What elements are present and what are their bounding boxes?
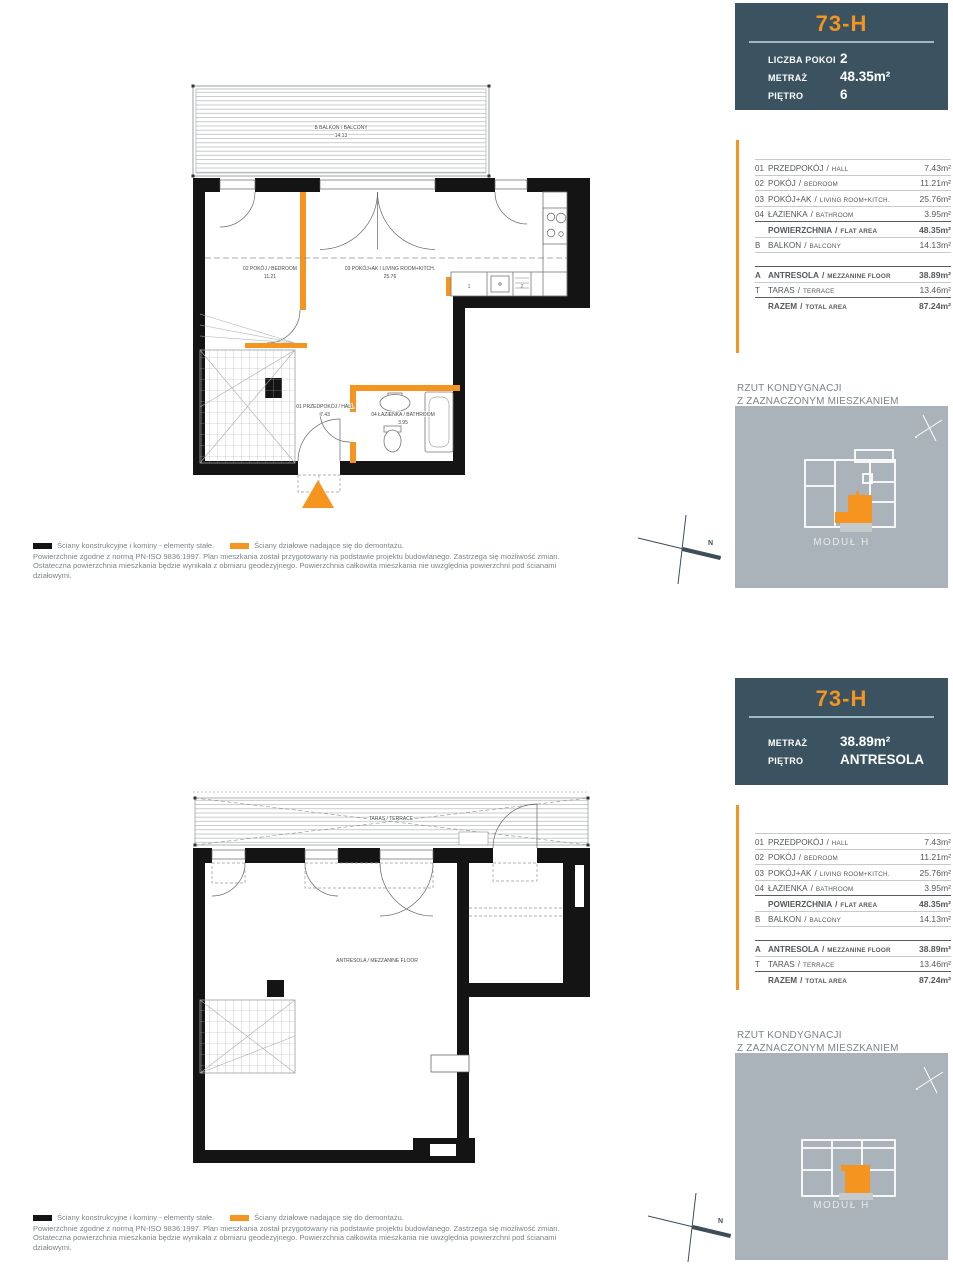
header-label: LICZBA POKOI — [768, 55, 840, 65]
north-compass-icon — [915, 415, 942, 441]
header-label: PIĘTRO — [768, 91, 840, 101]
room-label: TARAS / TERRACE — [369, 816, 414, 822]
table-row: 04ŁAZIENKA/BATHROOM3.95m² — [755, 880, 951, 896]
minimap-drawing — [735, 406, 948, 588]
table-row: 02POKÓJ/BEDROOM11.21m² — [755, 849, 951, 865]
dashed-guides — [212, 863, 563, 916]
legend: Ściany konstrukcyjne i kominy - elementy… — [33, 541, 593, 580]
legend: Ściany konstrukcyjne i kominy - elementy… — [33, 1213, 593, 1252]
table-row: 03POKÓJ+AK/LIVING ROOM+KITCH.25.76m² — [755, 864, 951, 880]
minimap-drawing — [735, 1053, 948, 1260]
legend-structural-text: Ściany konstrukcyjne i kominy - elementy… — [57, 1213, 214, 1223]
table-row: 01PRZEDPOKÓJ/HALL7.43m² — [755, 833, 951, 849]
module-label: MODUŁ H — [735, 537, 948, 548]
toilet-icon — [384, 426, 401, 452]
building-minimap-top: MODUŁ H — [735, 406, 948, 588]
stairs — [200, 1000, 295, 1073]
table-row-total: RAZEM/TOTAL AREA87.24m² — [755, 971, 951, 987]
wall-opening — [431, 1055, 469, 1072]
room-area: 11.21 — [264, 274, 276, 280]
table-row: TTARAS/TERRACE13.46m² — [755, 282, 951, 298]
partition-wall-swatch — [230, 1215, 249, 1222]
header-value: 2 — [840, 51, 848, 66]
room-label: 04 ŁAZIENKA / BATHROOM — [371, 412, 435, 418]
unit-header-panel-top: 73-H LICZBA POKOI 2 METRAŻ 48.35m² PIĘTR… — [735, 3, 948, 110]
room-label: 03 POKÓJ+AK / LIVING ROOM+KITCH. — [345, 265, 435, 272]
header-divider — [749, 41, 934, 43]
table-row: BBALKON/BALCONY14.13m² — [755, 237, 951, 254]
accent-line — [736, 805, 739, 990]
highlighted-unit — [835, 495, 872, 523]
kitchen — [451, 192, 567, 296]
header-row: METRAŻ 48.35m² — [735, 69, 948, 84]
partition-wall-swatch — [230, 543, 249, 550]
stairs — [200, 314, 295, 463]
row-name-en: HALL — [832, 166, 849, 173]
room-label: 02 POKÓJ / BEDROOM — [243, 265, 297, 272]
room-area: 25.76 — [384, 274, 397, 280]
bathroom-fixtures — [380, 392, 453, 452]
bathtub-icon — [425, 392, 453, 452]
header-row: PIĘTRO ANTRESOLA — [735, 752, 948, 767]
table-row-total: RAZEM/TOTAL AREA87.24m² — [755, 297, 951, 313]
room-area: 7.43 — [320, 412, 330, 418]
header-value: 48.35m² — [840, 69, 890, 84]
structural-wall-swatch — [33, 543, 52, 550]
row-code: 01 — [755, 164, 768, 173]
entrance-marker — [302, 480, 334, 508]
room-area: 14.13 — [335, 133, 348, 139]
svg-text:N: N — [708, 540, 713, 547]
accent-line — [736, 140, 739, 353]
kitchen-item-number: 1 — [467, 284, 470, 290]
building-minimap-bottom: MODUŁ H — [735, 1053, 948, 1260]
header-row: METRAŻ 38.89m² — [735, 734, 948, 749]
legend-note: Powierzchnie zgodne z normą PN-ISO 9836:… — [33, 1224, 593, 1234]
module-label: MODUŁ H — [735, 1200, 948, 1211]
room-label: 01 PRZEDPOKÓJ / HALL — [296, 403, 354, 410]
north-compass-icon: N — [638, 1190, 738, 1265]
legend-partition-text: Ściany działowe nadające się do demontaż… — [254, 541, 404, 551]
floor-note: RZUT KONDYGNACJI Z ZAZNACZONYM MIESZKANI… — [737, 1029, 899, 1055]
legend-note: Powierzchnie zgodne z normą PN-ISO 9836:… — [33, 552, 593, 562]
header-divider — [749, 716, 934, 718]
floor-note: RZUT KONDYGNACJI Z ZAZNACZONYM MIESZKANI… — [737, 382, 899, 408]
legend-note: Ostateczna powierzchnia mieszkania będzi… — [33, 1233, 593, 1252]
header-value: 6 — [840, 87, 848, 102]
floor-plan-main: B BALKON / BALCONY 14.13 02 POKÓJ / BEDR… — [185, 82, 615, 512]
area-table-top: 01PRZEDPOKÓJ/HALL7.43m² 02POKÓJ/BEDROOM1… — [755, 159, 951, 313]
table-row-total: AANTRESOLA/MEZZANINE FLOOR38.89m² — [755, 266, 951, 282]
sink-icon — [380, 393, 410, 412]
row-area: 7.43m² — [924, 163, 951, 173]
header-row: LICZBA POKOI 2 — [735, 51, 948, 66]
table-row-total: POWIERZCHNIA/FLAT AREA48.35m² — [755, 895, 951, 911]
row-name-pl: PRZEDPOKÓJ — [768, 164, 824, 173]
unit-number: 73-H — [735, 686, 948, 712]
table-row: 01PRZEDPOKÓJ/HALL7.43m² — [755, 159, 951, 175]
kitchen-item-number: 2 — [520, 284, 523, 290]
floor-plan-mezzanine: TARAS / TERRACE ANTRESOLA / MEZZANINE FL… — [185, 790, 615, 1175]
balcony — [192, 85, 491, 178]
table-row-total: POWIERZCHNIA/FLAT AREA48.35m² — [755, 221, 951, 237]
table-row: 04ŁAZIENKA/BATHROOM3.95m² — [755, 206, 951, 222]
table-row-total: AANTRESOLA/MEZZANINE FLOOR38.89m² — [755, 940, 951, 956]
area-table-bottom: 01PRZEDPOKÓJ/HALL7.43m² 02POKÓJ/BEDROOM1… — [755, 833, 951, 987]
sink-icon — [491, 276, 509, 292]
stove-icon — [543, 208, 567, 244]
room-area: 3.95 — [398, 420, 408, 426]
structural-wall-swatch — [33, 1215, 52, 1222]
table-row: BBALKON/BALCONY14.13m² — [755, 911, 951, 928]
north-compass-icon: N — [628, 512, 728, 587]
wall-window-slot — [575, 865, 584, 907]
north-compass-icon — [916, 1067, 943, 1093]
balcony-ghost — [840, 523, 872, 532]
table-row: TTARAS/TERRACE13.46m² — [755, 956, 951, 972]
header-row: PIĘTRO 6 — [735, 87, 948, 102]
svg-text:N: N — [718, 1218, 723, 1225]
unit-header-panel-bottom: 73-H METRAŻ 38.89m² PIĘTRO ANTRESOLA — [735, 678, 948, 785]
legend-partition-text: Ściany działowe nadające się do demontaż… — [254, 1213, 404, 1223]
room-label: B BALKON / BALCONY — [314, 125, 368, 131]
entry — [298, 475, 340, 508]
terrace-ghost — [839, 1193, 873, 1200]
table-row: 03POKÓJ+AK/LIVING ROOM+KITCH.25.76m² — [755, 190, 951, 206]
wall-niche — [430, 1144, 456, 1156]
unit-number: 73-H — [735, 11, 948, 37]
plan-sheet: { "colors":{"panel_bg":"#3b5361","accent… — [0, 0, 953, 1280]
room-label: ANTRESOLA / MEZZANINE FLOOR — [336, 958, 418, 964]
highlighted-unit — [845, 1165, 870, 1193]
legend-note: Ostateczna powierzchnia mieszkania będzi… — [33, 561, 593, 580]
header-label: METRAŻ — [768, 73, 840, 83]
table-row: 02POKÓJ/BEDROOM11.21m² — [755, 175, 951, 191]
legend-structural-text: Ściany konstrukcyjne i kominy - elementy… — [57, 541, 214, 551]
